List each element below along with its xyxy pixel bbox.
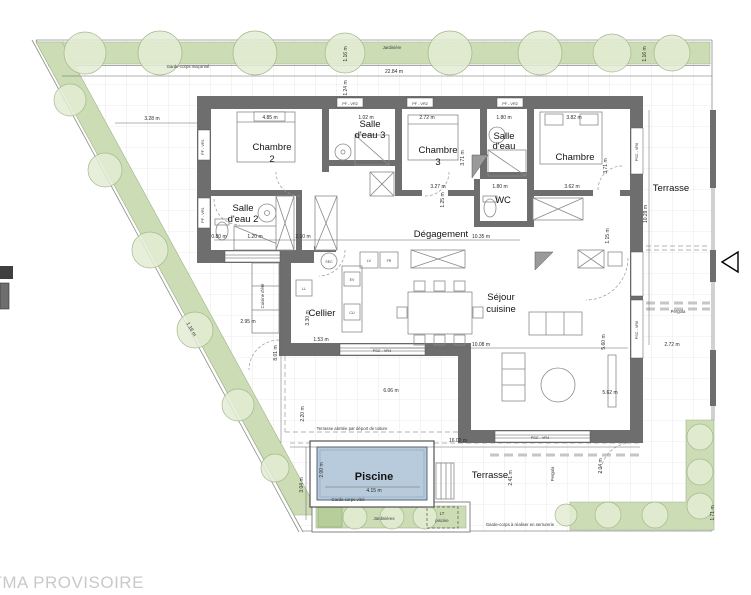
svg-text:10.29 m: 10.29 m bbox=[643, 205, 649, 223]
tag-ev: EV bbox=[350, 278, 355, 282]
svg-text:4.85 m: 4.85 m bbox=[262, 115, 277, 121]
svg-text:2.41 m: 2.41 m bbox=[508, 470, 514, 485]
floor-plan-page: Chambre 2 Salle d'eau 3 Chambre 3 Salle … bbox=[0, 0, 751, 595]
label-pergola-bottom: Pergola bbox=[550, 466, 555, 481]
section-marker-2 bbox=[0, 283, 9, 309]
window-tag-right: PSC - VR6 bbox=[635, 143, 639, 162]
svg-text:2.00 m: 2.00 m bbox=[319, 462, 325, 477]
svg-text:1.20 m: 1.20 m bbox=[247, 234, 262, 240]
svg-text:3.27 m: 3.27 m bbox=[430, 184, 445, 190]
svg-text:8.01 m: 8.01 m bbox=[273, 345, 279, 360]
label-chambre3: Chambre bbox=[418, 145, 457, 156]
svg-text:5.62 m: 5.62 m bbox=[602, 390, 617, 396]
svg-text:1.80 m: 1.80 m bbox=[492, 184, 507, 190]
label-cellier: Cellier bbox=[309, 308, 336, 319]
svg-text:10.08 m: 10.08 m bbox=[472, 342, 490, 348]
svg-text:1.16 m: 1.16 m bbox=[642, 46, 648, 61]
label-jardinieres: Jardinières bbox=[373, 516, 394, 521]
svg-text:PSC - VR4: PSC - VR4 bbox=[373, 349, 392, 353]
entrance-arrow bbox=[722, 252, 738, 272]
svg-text:d'eau 3: d'eau 3 bbox=[355, 130, 386, 141]
svg-text:6.06 m: 6.06 m bbox=[383, 388, 398, 394]
label-garde-corps-serrurerie: Garde-corps à réaliser en serrurerie bbox=[486, 522, 555, 527]
svg-text:PF - VR2: PF - VR2 bbox=[412, 102, 428, 106]
svg-text:2.10 m: 2.10 m bbox=[295, 234, 310, 240]
label-terrasse-bottom: Terrasse bbox=[472, 470, 508, 481]
label-toiture-note: Terrasse abritée par déport de toiture bbox=[317, 426, 388, 431]
window-tag-left: PF - VR1 bbox=[201, 139, 205, 155]
label-garde-corps-vitre: Garde-corps vitré bbox=[331, 497, 365, 502]
window-tag-top: PF - VR2 bbox=[342, 102, 358, 106]
svg-text:16.02 m: 16.02 m bbox=[449, 438, 467, 444]
svg-text:PF - VR2: PF - VR2 bbox=[502, 102, 518, 106]
label-sejour: Séjour bbox=[487, 292, 514, 303]
svg-text:1.02 m: 1.02 m bbox=[358, 115, 373, 121]
svg-text:1.53 m: 1.53 m bbox=[313, 337, 328, 343]
svg-text:1.15 m: 1.15 m bbox=[605, 228, 611, 243]
label-terrasse-right: Terrasse bbox=[653, 183, 689, 194]
label-wc: WC bbox=[495, 195, 511, 206]
label-degagement: Dégagement bbox=[414, 229, 469, 240]
label-garde-corps-maconne: Garde-corps maçonné bbox=[167, 64, 210, 69]
svg-text:3.30 m: 3.30 m bbox=[305, 310, 311, 325]
svg-text:10.35 m: 10.35 m bbox=[472, 234, 490, 240]
label-lt-piscine: LT bbox=[440, 511, 445, 516]
svg-text:piscine: piscine bbox=[435, 518, 449, 523]
svg-text:d'eau: d'eau bbox=[493, 141, 516, 152]
section-marker bbox=[0, 266, 13, 279]
svg-text:1.71 m: 1.71 m bbox=[710, 505, 716, 520]
label-cuisine-ete: Cuisine d'été bbox=[260, 283, 265, 308]
svg-text:1.80 m: 1.80 m bbox=[496, 115, 511, 121]
svg-text:2: 2 bbox=[269, 154, 274, 165]
svg-text:22.84 m: 22.84 m bbox=[385, 69, 403, 75]
svg-text:d'eau 2: d'eau 2 bbox=[228, 214, 259, 225]
svg-text:1.25 m: 1.25 m bbox=[440, 192, 446, 207]
svg-text:3.82 m: 3.82 m bbox=[566, 115, 581, 121]
label-chambre: Chambre bbox=[555, 152, 594, 163]
svg-text:2.72 m: 2.72 m bbox=[664, 342, 679, 348]
svg-text:cuisine: cuisine bbox=[486, 304, 516, 315]
svg-text:3: 3 bbox=[435, 157, 440, 168]
label-jardiniere-top: Jardinière bbox=[383, 45, 402, 50]
svg-text:2.72 m: 2.72 m bbox=[419, 115, 434, 121]
svg-text:5.60 m: 5.60 m bbox=[601, 334, 607, 349]
svg-text:2.95 m: 2.95 m bbox=[240, 319, 255, 325]
tag-lv: LV bbox=[367, 259, 372, 263]
svg-text:3.28 m: 3.28 m bbox=[144, 116, 159, 122]
window-tag-bottom: PSC - VR4 bbox=[531, 436, 550, 440]
tag-ll: LL bbox=[302, 287, 306, 291]
svg-text:PF - VR1: PF - VR1 bbox=[201, 207, 205, 223]
svg-text:4.15 m: 4.15 m bbox=[366, 488, 381, 494]
page-title: PLAN TMA PROVISOIRE bbox=[0, 573, 144, 592]
svg-text:3.04 m: 3.04 m bbox=[299, 477, 305, 492]
svg-text:3.71 m: 3.71 m bbox=[603, 158, 609, 173]
floor-plan-drawing: Chambre 2 Salle d'eau 3 Chambre 3 Salle … bbox=[0, 0, 751, 595]
tag-fr: FR bbox=[387, 259, 392, 263]
svg-text:3.62 m: 3.62 m bbox=[564, 184, 579, 190]
label-pergola-right: Pergola bbox=[671, 309, 686, 314]
svg-text:3.71 m: 3.71 m bbox=[460, 150, 466, 165]
svg-text:1.16 m: 1.16 m bbox=[343, 46, 349, 61]
svg-text:1.24 m: 1.24 m bbox=[343, 80, 349, 95]
label-chambre2: Chambre bbox=[252, 142, 291, 153]
svg-text:0.80 m: 0.80 m bbox=[211, 234, 226, 240]
svg-text:2.20 m: 2.20 m bbox=[300, 406, 306, 421]
tag-cu: CU bbox=[349, 311, 355, 315]
label-sde2: Salle bbox=[232, 203, 253, 214]
svg-text:2.04 m: 2.04 m bbox=[598, 458, 604, 473]
svg-text:PSC - VR6: PSC - VR6 bbox=[635, 321, 639, 340]
tag-sec: SEC bbox=[325, 260, 333, 264]
terrace-railing-right bbox=[710, 110, 716, 420]
label-piscine: Piscine bbox=[355, 471, 394, 483]
